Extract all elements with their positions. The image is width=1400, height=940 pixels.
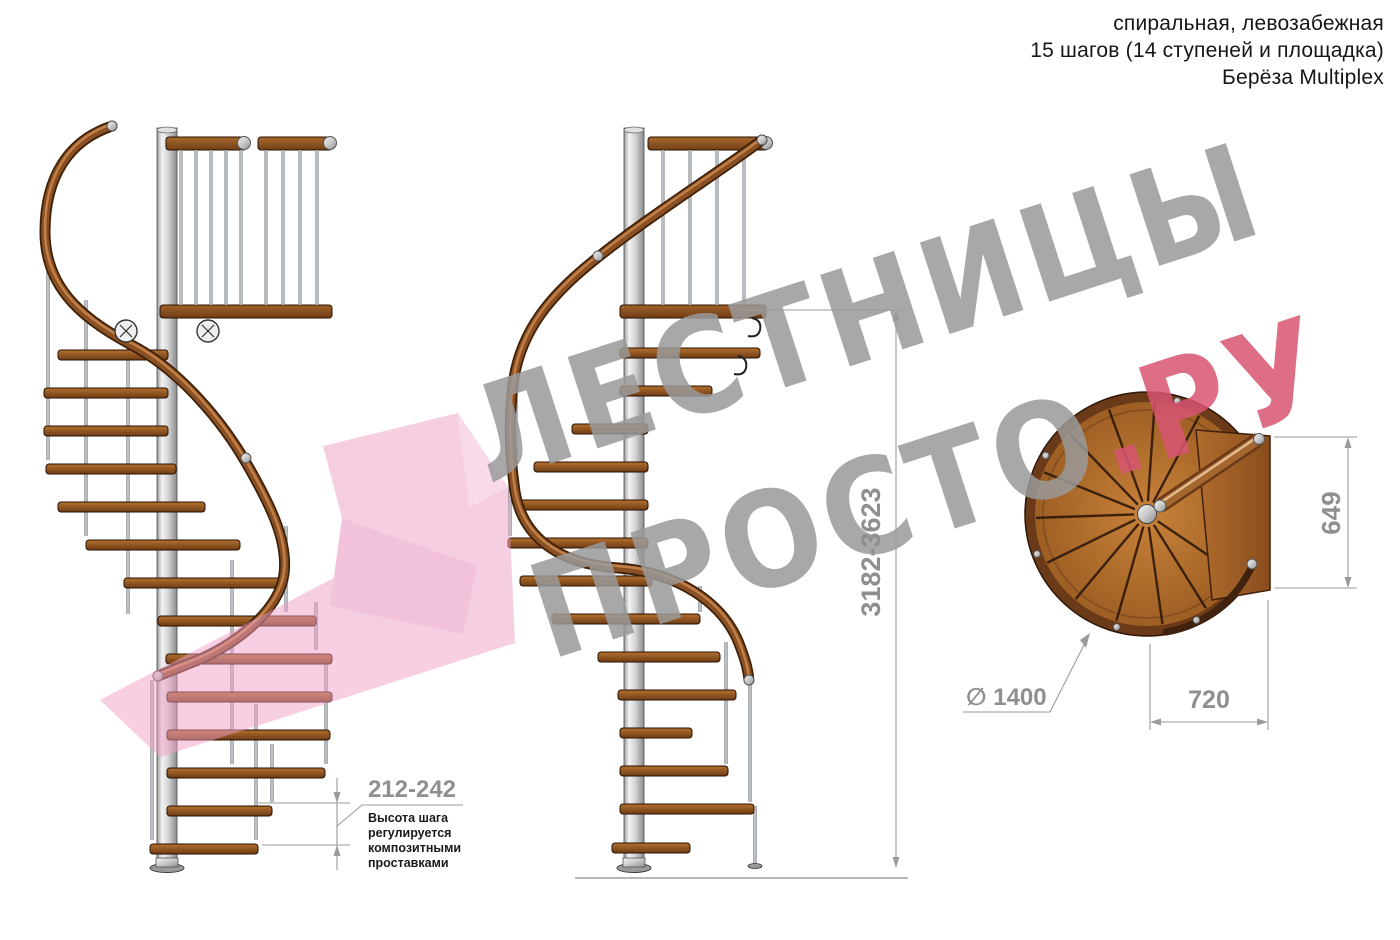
side-view-left (44, 121, 337, 873)
drawing-header: спиральная, левозабежная 15 шагов (14 ст… (1030, 10, 1384, 91)
technical-drawing-page: ЛЕСТНИЦЫ ПРОСТО.РУ (0, 0, 1400, 940)
arrow-down-icon (334, 792, 341, 803)
arrow-up-icon (334, 845, 341, 856)
header-steps: 15 шагов (14 ступеней и площадка) (1030, 37, 1384, 64)
plan-diameter-label: ∅ 1400 (966, 684, 1047, 711)
arrow-down-icon (893, 857, 900, 868)
total-height-label: 3182-3623 (856, 487, 886, 616)
leader-line-diameter (1050, 639, 1087, 712)
header-material: Берёза Multiplex (1030, 64, 1384, 91)
step-note-line4: проставками (368, 856, 449, 870)
watermark-word2-suffix: .РУ (1072, 287, 1348, 508)
arrow-ne-icon (1080, 633, 1090, 648)
arrow-up-icon (1345, 437, 1352, 448)
platform-length-label: 649 (1316, 491, 1346, 534)
step-note-line1: Высота шага (368, 811, 449, 825)
arrow-down-icon (1345, 577, 1352, 588)
arrow-right-icon (1257, 719, 1268, 726)
header-type: спиральная, левозабежная (1030, 10, 1384, 37)
staircase-drawing: ЛЕСТНИЦЫ ПРОСТО.РУ (0, 0, 1400, 940)
step-note-line2: регулируется (368, 826, 451, 840)
step-height-label: 212-242 (368, 776, 456, 803)
platform-width-label: 720 (1188, 686, 1230, 714)
step-note-line3: композитными (368, 841, 461, 855)
arrow-left-icon (1150, 719, 1161, 726)
